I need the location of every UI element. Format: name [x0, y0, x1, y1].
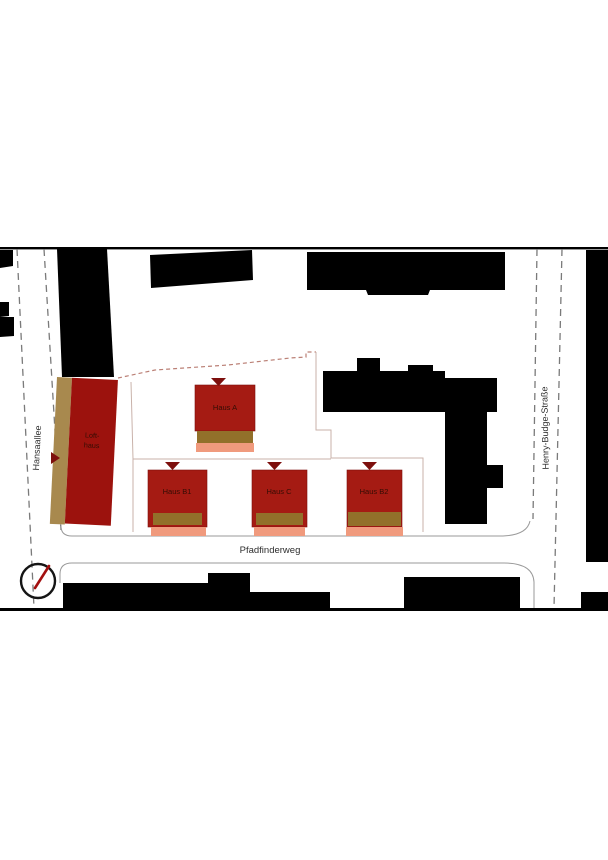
pfadfinderweg-street-label: Pfadfinderweg — [240, 545, 301, 556]
existing-building-north-small — [150, 250, 253, 288]
existing-building-northwest-strip — [57, 249, 114, 377]
henry-budge-east-line — [554, 249, 562, 608]
existing-building-east-strip — [586, 250, 608, 562]
haus-c-brown-strip — [256, 513, 303, 525]
entrance-marker-icon — [267, 462, 282, 470]
entrance-marker-icon — [165, 462, 180, 470]
haus-a-brown-strip — [197, 431, 253, 443]
site-plan-drawing: Loft- haus Haus A Haus B1 Haus C — [0, 0, 608, 860]
haus-c-salmon-strip — [254, 527, 305, 536]
existing-building — [0, 302, 9, 317]
existing-building — [0, 317, 14, 337]
loft-haus-label-line1: Loft- — [85, 430, 100, 440]
haus-c-building: Haus C — [252, 462, 307, 536]
hansaallee-west-line — [17, 249, 34, 608]
existing-building-south-west — [63, 573, 330, 609]
henry-budge-west-line — [533, 249, 537, 519]
existing-building — [0, 250, 13, 268]
loft-haus-building: Loft- haus — [50, 377, 118, 527]
haus-b1-label: Haus B1 — [163, 487, 192, 496]
haus-b1-salmon-strip — [151, 527, 206, 536]
henry-budge-street-label: Henry-Budge-Straße — [539, 386, 550, 469]
compass-needle — [35, 566, 49, 588]
existing-building-south-east — [404, 577, 520, 609]
haus-a-building: Haus A — [195, 378, 255, 452]
haus-a-salmon-strip — [196, 443, 254, 452]
loft-haus-label-line2: haus — [84, 440, 100, 450]
site-boundary-dashed — [118, 352, 316, 378]
haus-b2-label: Haus B2 — [360, 487, 389, 496]
north-arrow-icon — [21, 564, 55, 598]
haus-c-label: Haus C — [266, 487, 292, 496]
existing-building-north-large — [307, 252, 505, 295]
haus-b1-brown-strip — [153, 513, 202, 525]
loft-haus-body — [65, 378, 118, 526]
haus-b1-building: Haus B1 — [148, 462, 207, 536]
haus-a-label: Haus A — [213, 403, 237, 412]
site-plan-page: Loft- haus Haus A Haus B1 Haus C — [0, 0, 608, 860]
haus-b2-salmon-strip — [346, 527, 403, 536]
haus-b2-brown-strip — [348, 512, 401, 526]
hansaallee-street-label: Hansaallee — [31, 425, 43, 470]
entrance-marker-icon — [362, 462, 377, 470]
existing-building-east-south — [581, 592, 608, 609]
haus-b2-building: Haus B2 — [346, 462, 403, 536]
